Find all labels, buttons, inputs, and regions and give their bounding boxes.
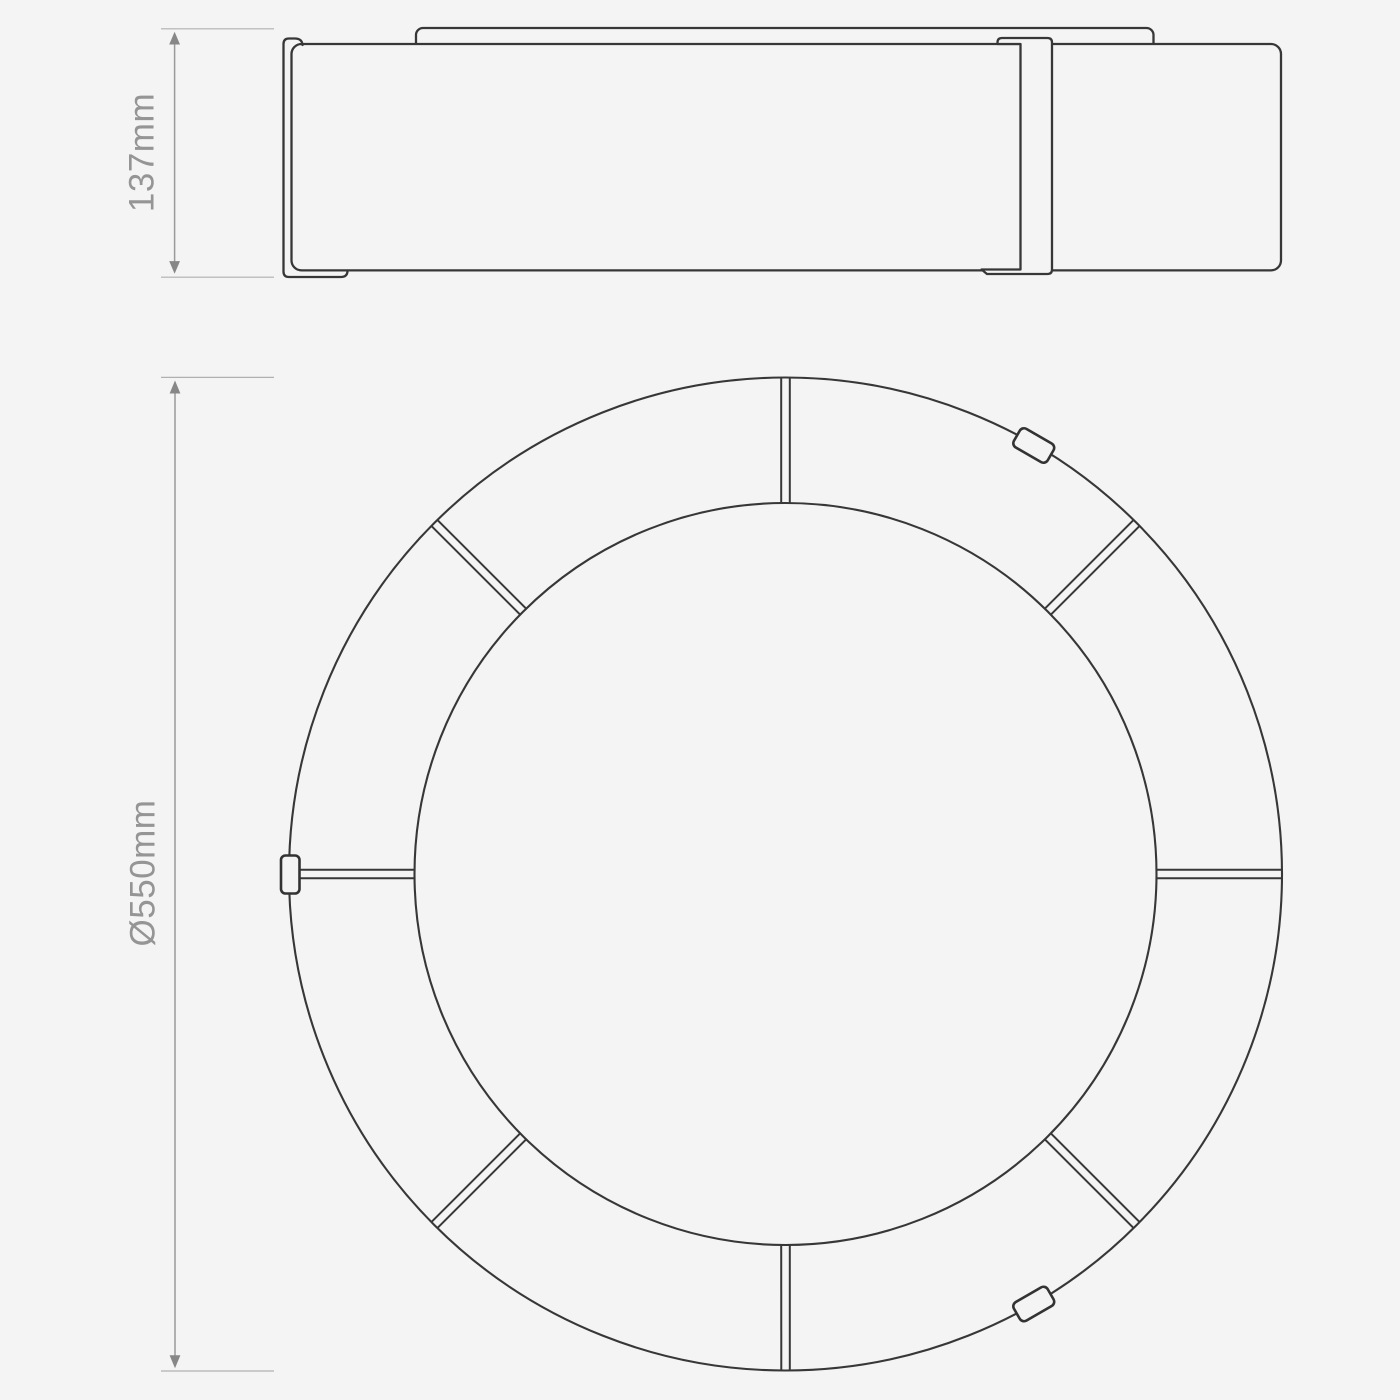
svg-text:137mm: 137mm (123, 93, 162, 212)
svg-text:Ø550mm: Ø550mm (124, 800, 163, 947)
